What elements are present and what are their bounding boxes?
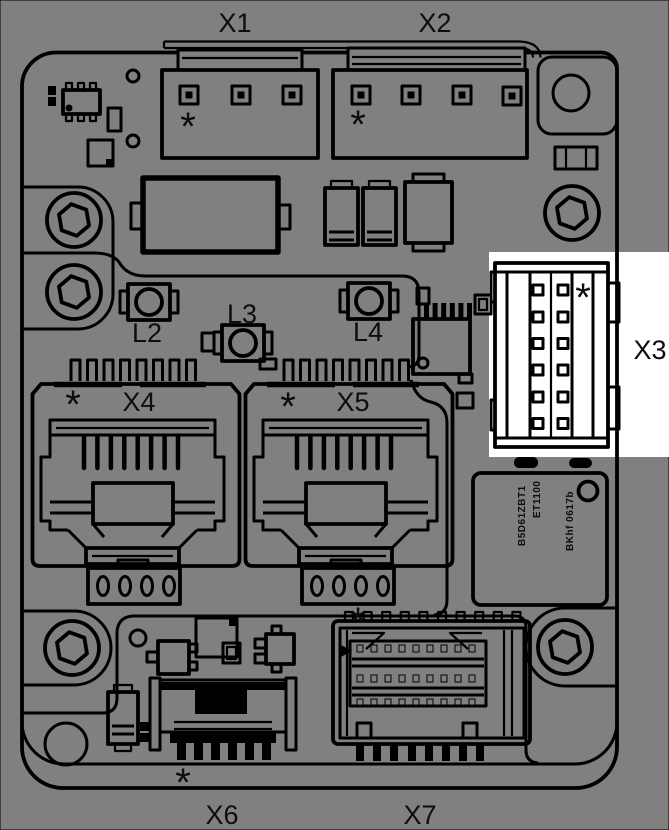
l3-label: L3 (227, 299, 257, 329)
x2-label: X2 (418, 8, 451, 38)
solder-pads-below-x3 (514, 457, 592, 468)
x7-pin1-asterisk: * (350, 600, 366, 644)
x4-pin1-asterisk: * (65, 383, 81, 427)
led-l4 (340, 283, 398, 319)
x4-led-window (88, 568, 180, 604)
ic-sot-top-left (63, 83, 100, 121)
chip-marking-1: B5D61ZBT1 (517, 485, 528, 546)
x7-label: X7 (403, 800, 436, 830)
x5-label: X5 (336, 387, 369, 417)
fuse-component (555, 147, 597, 169)
x5-pin1-asterisk: * (280, 385, 296, 429)
led-l2 (120, 284, 178, 320)
x6-connector (150, 678, 296, 760)
passives-top-left (48, 70, 139, 166)
x3-pin1-asterisk: * (575, 276, 591, 320)
x6-label: X6 (205, 800, 238, 830)
x2-pin1-asterisk: * (350, 103, 366, 147)
l2-label: L2 (132, 318, 162, 348)
l4-label: L4 (353, 317, 383, 347)
mounting-hole-top-right (553, 75, 589, 111)
x3-label: X3 (633, 335, 666, 365)
chip-marking-3: BKhf 0617b (565, 491, 576, 551)
pcb-drawing: B5D61ZBT1 ET1100 BKhf 0617b (0, 0, 669, 830)
inductor-component (131, 178, 290, 252)
mounting-hole-bottom-left (45, 723, 87, 765)
x1-label: X1 (218, 8, 251, 38)
ethernet-chip: B5D61ZBT1 ET1100 BKhf 0617b (473, 473, 607, 605)
soic8-ic (413, 303, 473, 408)
x1-pin1-asterisk: * (180, 105, 196, 149)
x6-pin1-asterisk: * (175, 761, 191, 805)
led-l3 (214, 325, 272, 361)
x4-label: X4 (122, 387, 155, 417)
capacitor-bank (325, 174, 452, 251)
chip-marking-2: ET1100 (532, 481, 543, 518)
x5-led-window (302, 568, 394, 604)
pcb-diagram: B5D61ZBT1 ET1100 BKhf 0617b (0, 0, 669, 830)
